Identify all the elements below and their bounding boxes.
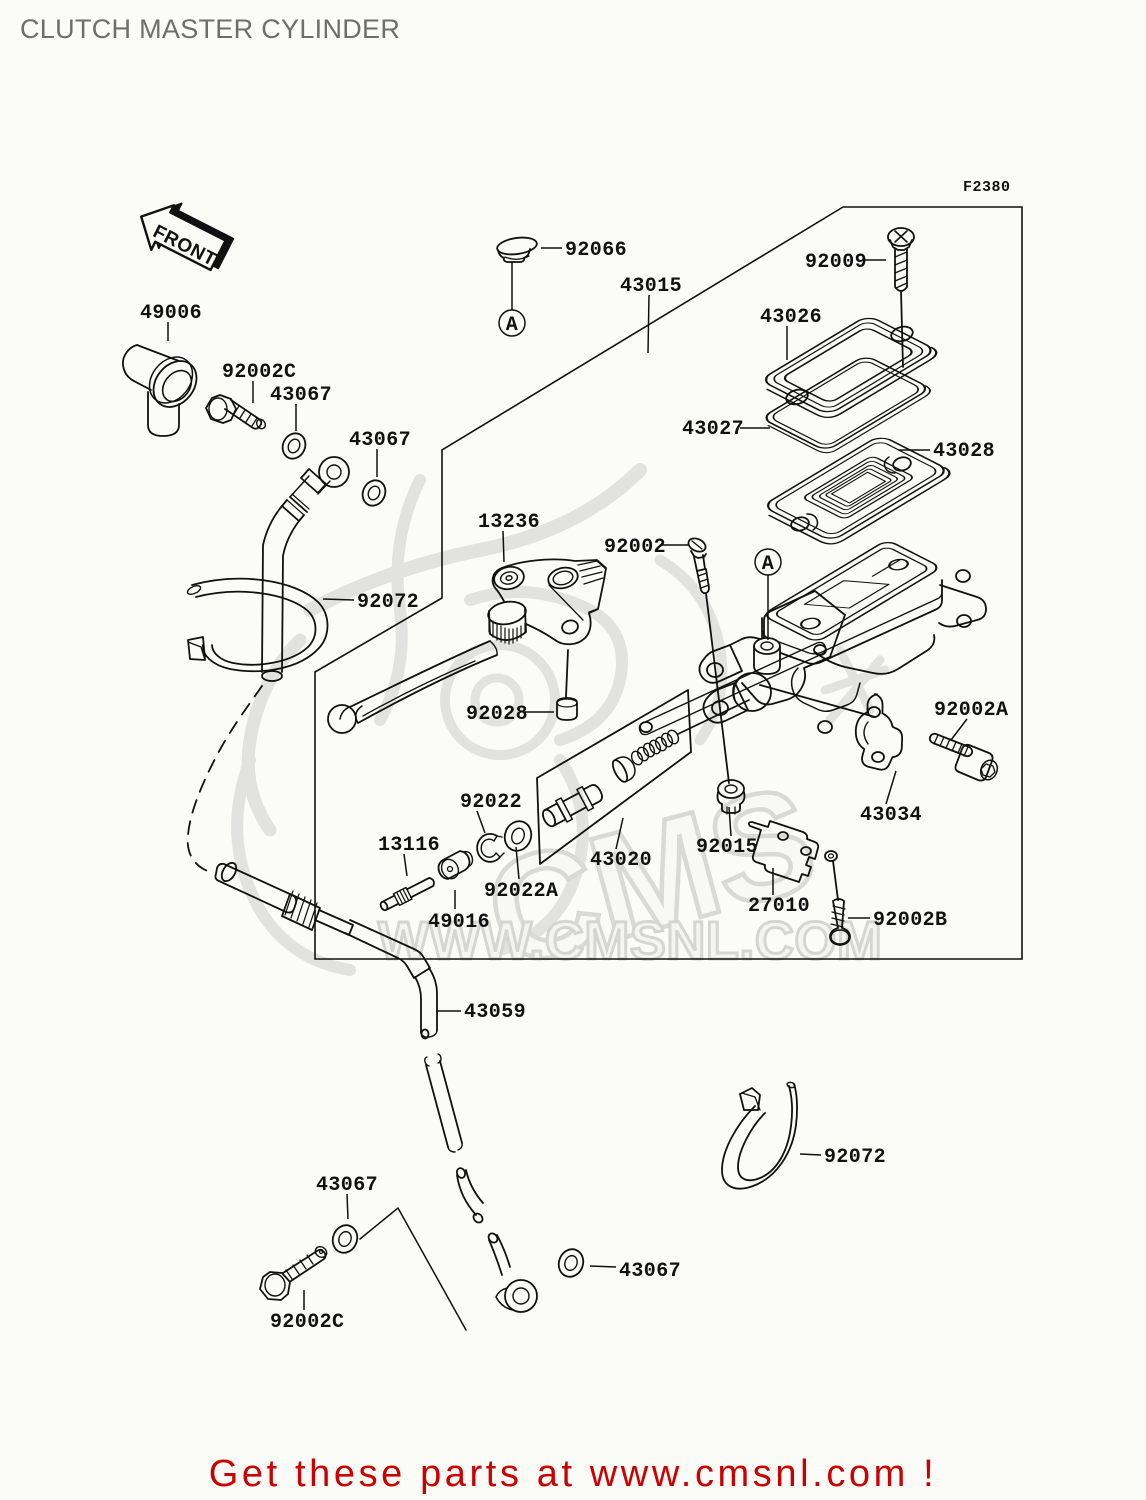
svg-text:43027: 43027 <box>682 418 744 441</box>
svg-text:43015: 43015 <box>620 275 682 298</box>
svg-text:A: A <box>762 553 774 576</box>
svg-text:27010: 27010 <box>748 895 810 918</box>
svg-text:49006: 49006 <box>140 302 202 325</box>
svg-text:92002C: 92002C <box>270 1311 344 1334</box>
svg-text:92009: 92009 <box>805 251 867 274</box>
svg-text:F2380: F2380 <box>963 179 1011 196</box>
svg-text:92015: 92015 <box>696 836 758 859</box>
svg-text:92022A: 92022A <box>484 880 558 903</box>
svg-text:13236: 13236 <box>478 511 540 534</box>
svg-text:CLUTCH MASTER CYLINDER: CLUTCH MASTER CYLINDER <box>20 14 400 44</box>
svg-text:Get these parts at www.cmsnl.c: Get these parts at www.cmsnl.com ! <box>209 1453 938 1495</box>
svg-text:92002B: 92002B <box>873 909 947 932</box>
svg-text:43028: 43028 <box>933 440 995 463</box>
svg-text:43059: 43059 <box>464 1001 526 1024</box>
svg-text:92072: 92072 <box>357 591 419 614</box>
svg-text:92066: 92066 <box>565 239 627 262</box>
svg-text:92072: 92072 <box>824 1146 886 1169</box>
svg-text:92002C: 92002C <box>222 361 296 384</box>
svg-text:13116: 13116 <box>378 834 440 857</box>
svg-text:43034: 43034 <box>860 804 922 827</box>
svg-text:92002A: 92002A <box>934 699 1008 722</box>
svg-text:92028: 92028 <box>466 703 528 726</box>
svg-text:43067: 43067 <box>316 1174 378 1197</box>
svg-text:92022: 92022 <box>460 791 522 814</box>
svg-text:49016: 49016 <box>428 911 490 934</box>
svg-text:43067: 43067 <box>270 384 332 407</box>
svg-text:43067: 43067 <box>619 1260 681 1283</box>
svg-text:92002: 92002 <box>604 536 666 559</box>
svg-text:43020: 43020 <box>590 849 652 872</box>
svg-text:43067: 43067 <box>349 429 411 452</box>
svg-text:43026: 43026 <box>760 306 822 329</box>
svg-text:A: A <box>506 314 518 337</box>
